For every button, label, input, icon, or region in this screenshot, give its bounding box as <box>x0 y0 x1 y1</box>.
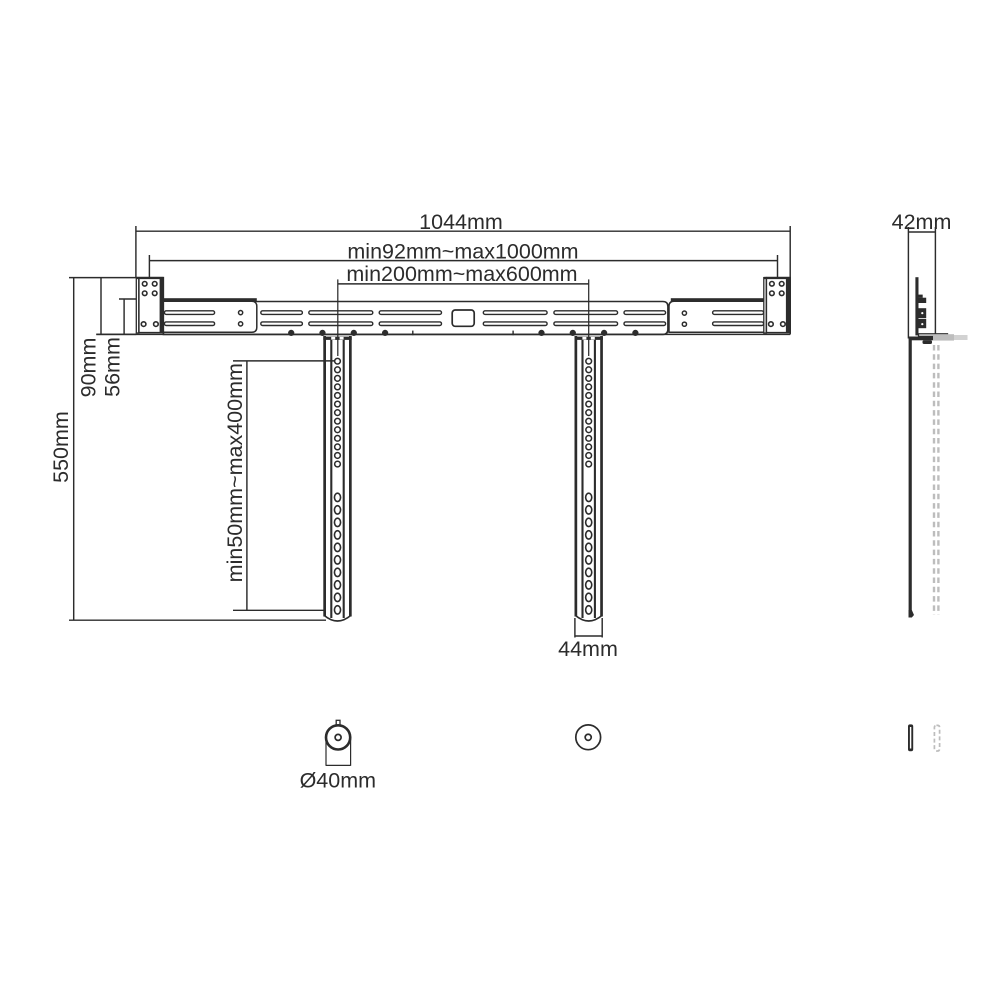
svg-text:44mm: 44mm <box>558 637 618 661</box>
svg-text:Ø40mm: Ø40mm <box>300 769 376 793</box>
svg-text:550mm: 550mm <box>49 411 73 483</box>
svg-text:90mm: 90mm <box>77 338 101 398</box>
svg-text:min200mm~max600mm: min200mm~max600mm <box>346 262 577 286</box>
svg-text:42mm: 42mm <box>892 210 952 234</box>
svg-text:1044mm: 1044mm <box>419 210 503 234</box>
svg-text:min92mm~max1000mm: min92mm~max1000mm <box>347 239 578 263</box>
svg-text:min50mm~max400mm: min50mm~max400mm <box>223 363 247 582</box>
svg-text:56mm: 56mm <box>101 337 125 397</box>
